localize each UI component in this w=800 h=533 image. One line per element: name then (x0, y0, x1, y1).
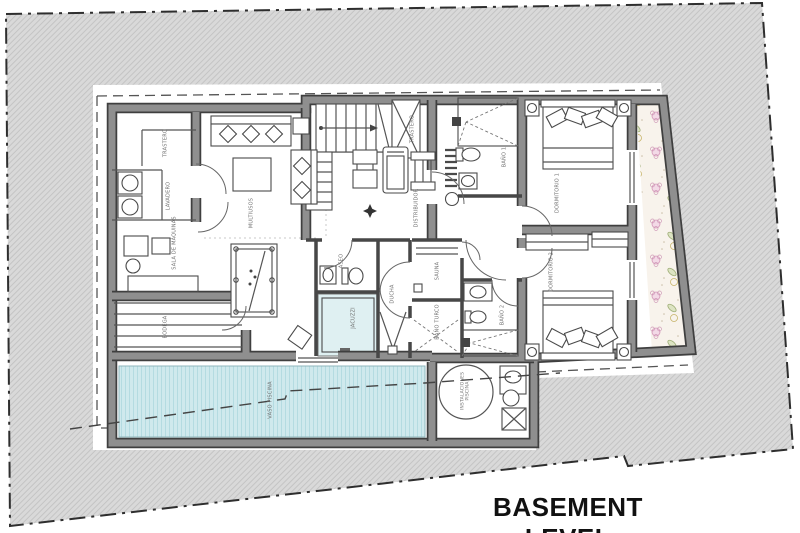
room-label-distribuidor: DISTRIBUIDOR (414, 189, 419, 228)
billiard-table-icon (231, 244, 277, 317)
room-label-sala-de-maquinas: SALA DE MÁQUINAS (172, 216, 177, 269)
sink-icon (320, 266, 336, 284)
wardrobe-icon (526, 232, 628, 250)
room-label-lavadero: LAVADERO (166, 182, 171, 211)
dumbbell-rack-icon (445, 150, 457, 186)
side-table-icon (293, 118, 309, 134)
room-label-ducha: DUCHA (390, 284, 395, 303)
room-label-dormitorio-2: DORMITORIO 2 (549, 252, 554, 292)
plan-title: BASEMENT LEVEL (447, 492, 689, 533)
shower-head-icon (452, 117, 461, 126)
exercise-ball-icon (446, 193, 459, 206)
floor-plan-svg (0, 0, 800, 533)
room-label-sauna: SAUNA (435, 262, 440, 281)
jacuzzi-icon (318, 294, 378, 356)
room-label-bano-2: BAÑO 2 (500, 305, 505, 326)
room-label-bano-turco: BAÑO TURCO (435, 304, 440, 339)
toilet-icon (465, 311, 486, 323)
room-label-bodega: BODEGA (163, 316, 168, 339)
shower-head-icon (461, 338, 470, 347)
room-label-trastero-escalera: TRASTERO (410, 115, 415, 143)
sink-icon (464, 283, 492, 301)
sofa-icon (211, 116, 291, 146)
sink-icon (503, 390, 519, 406)
room-label-jacuzzi: JACUZZI (351, 307, 356, 329)
shaft-icon (502, 408, 526, 430)
armchair-icon (291, 150, 317, 204)
treadmill-icon (383, 147, 408, 193)
toilet-icon (456, 148, 480, 161)
sink-icon (459, 173, 477, 189)
toilet-icon (342, 268, 363, 284)
room-label-multiusos: MULTIUSOS (249, 198, 254, 228)
room-label-bano-1: BAÑO 1 (502, 147, 507, 168)
room-label-aseo: ASEO (339, 254, 344, 269)
room-label-instalaciones-piscina: INSTALACIONES PISCINA (461, 371, 470, 411)
room-label-trastero-left: TRASTERO (163, 129, 168, 157)
room-label-vaso-piscina: VASO PISCINA (268, 381, 273, 418)
floorplan-canvas: TRASTERO LAVADERO SALA DE MÁQUINAS BODEG… (0, 0, 800, 533)
room-label-dormitorio-1: DORMITORIO 1 (555, 173, 560, 213)
cable-machine-icon (411, 152, 435, 190)
